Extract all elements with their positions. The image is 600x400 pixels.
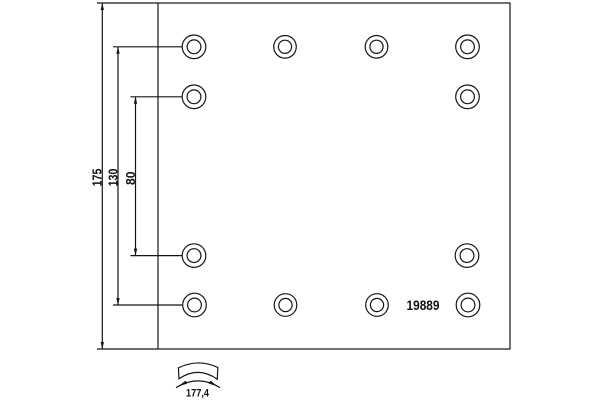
svg-text:80: 80	[123, 172, 138, 186]
svg-text:130: 130	[105, 169, 120, 187]
svg-text:177,4: 177,4	[186, 387, 210, 399]
svg-text:175: 175	[90, 169, 105, 187]
svg-text:19889: 19889	[407, 298, 440, 313]
